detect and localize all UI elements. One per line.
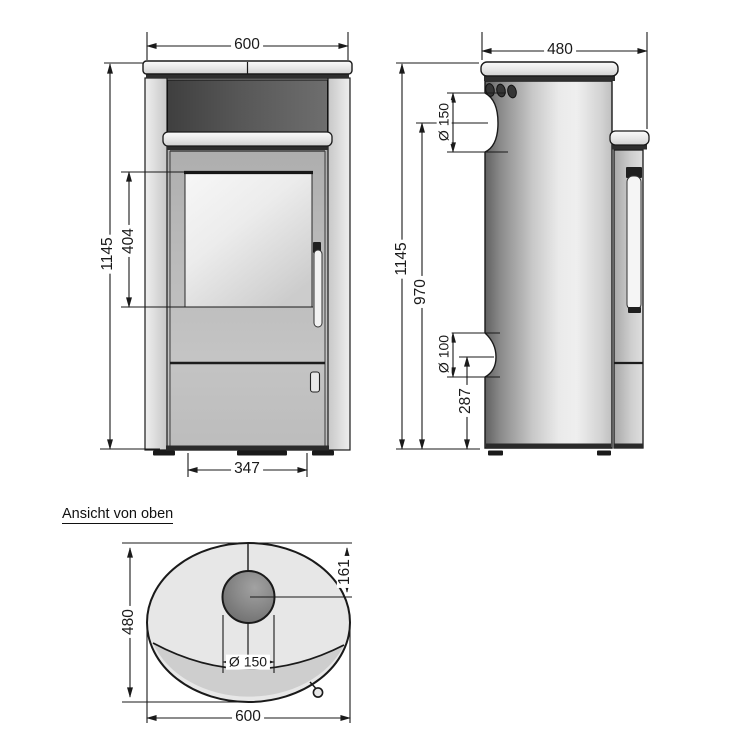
top-handle-knob <box>313 688 322 697</box>
dim-label-side-intake-height: 287 <box>458 385 474 417</box>
dim-label-side-height: 1145 <box>394 239 410 278</box>
front-door-handle <box>314 250 322 327</box>
front-foot-center <box>237 451 287 456</box>
front-foot-left <box>153 451 175 456</box>
dim-label-top-flue-diameter: Ø 150 <box>226 655 270 670</box>
front-bottom-edge <box>166 446 329 451</box>
dim-label-side-flue-height: 970 <box>413 276 429 308</box>
side-bottom-edge <box>486 444 611 449</box>
side-shelf <box>610 131 649 145</box>
dim-label-front-width: 600 <box>231 37 263 53</box>
dim-label-front-glass-height: 404 <box>121 225 137 257</box>
dim-label-side-intake-diameter: Ø 100 <box>437 332 452 376</box>
drawing-linework <box>0 0 750 750</box>
dim-label-front-height: 1145 <box>100 234 116 273</box>
side-vent-holes <box>485 83 518 99</box>
side-topplate <box>481 62 618 76</box>
side-door-handle <box>627 176 641 310</box>
front-glass <box>185 172 312 307</box>
stove-technical-drawing: 600 1145 404 347 480 1145 970 Ø 150 Ø 10… <box>0 0 750 750</box>
dim-label-side-depth: 480 <box>544 42 576 58</box>
top-view <box>147 543 350 702</box>
front-upper-band <box>168 80 328 132</box>
front-view <box>143 61 352 456</box>
dim-label-side-flue-diameter: Ø 150 <box>437 100 452 144</box>
side-handle-end <box>628 307 641 313</box>
side-strip-bottom-edge <box>614 444 643 449</box>
front-latch <box>311 372 320 392</box>
dim-label-top-depth: 480 <box>121 606 137 638</box>
front-foot-right <box>312 451 334 456</box>
dim-label-top-flue-offset: 161 <box>337 556 353 588</box>
dim-label-top-width: 600 <box>232 709 264 725</box>
front-shelf <box>163 132 332 146</box>
side-view <box>481 62 649 456</box>
side-foot-rear <box>488 451 503 456</box>
dim-label-front-door-width: 347 <box>231 461 263 477</box>
top-view-title: Ansicht von oben <box>62 506 173 524</box>
side-body <box>485 81 612 448</box>
side-foot-front <box>597 451 611 456</box>
